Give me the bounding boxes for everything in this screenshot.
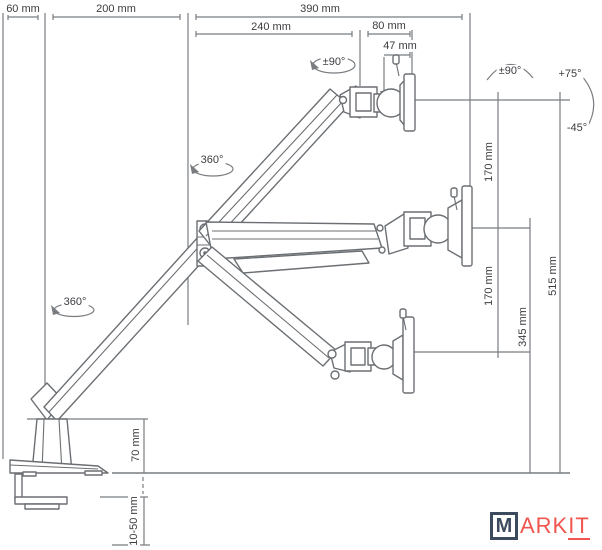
monitor-head-bottom xyxy=(328,309,414,393)
vesa-plate xyxy=(403,317,414,393)
angle-label-tilt-up: +75° xyxy=(556,68,583,80)
line-drawing xyxy=(0,0,602,550)
head-bracket-inner xyxy=(356,93,371,111)
monitor-arm-dimension-drawing: 60 mm 200 mm 390 mm 240 mm 80 mm 47 mm ±… xyxy=(0,0,602,550)
logo-it: IT xyxy=(568,513,590,540)
vesa-plate xyxy=(462,186,472,266)
dim-label-515mm: 515 mm xyxy=(547,254,559,298)
logo-ark: ARK xyxy=(520,513,568,538)
dim-label-47mm: 47 mm xyxy=(381,40,419,52)
head-pivot-screw-b xyxy=(331,371,339,379)
dim-label-345mm: 345 mm xyxy=(517,305,529,349)
angle-label-elbow-rotation: 360° xyxy=(199,154,226,166)
tilt-arc xyxy=(580,74,594,129)
head-cone xyxy=(393,335,403,380)
clamp-foot-left xyxy=(23,472,36,476)
monitor-head-top xyxy=(340,55,416,131)
monitor-head-middle xyxy=(385,186,472,266)
arm-artwork xyxy=(10,55,472,509)
dim-label-70mm: 70 mm xyxy=(130,426,142,464)
clamp-pad xyxy=(25,504,59,509)
quick-release-cap xyxy=(451,188,457,197)
dim-label-200mm: 200 mm xyxy=(94,3,138,15)
rotation-arrow-base xyxy=(51,305,60,315)
clamp-bottom-arm xyxy=(15,497,67,504)
rotation-annotations xyxy=(51,57,594,317)
dim-label-60mm: 60 mm xyxy=(4,3,42,15)
dim-label-170mm-upper: 170 mm xyxy=(483,140,495,184)
angle-label-swivel: ±90° xyxy=(497,65,524,77)
dim-label-80mm: 80 mm xyxy=(370,20,408,32)
middle-arm-pivot-a xyxy=(377,225,383,231)
angle-label-head-rotation: ±90° xyxy=(321,56,348,68)
dim-label-10-50mm: 10-50 mm xyxy=(128,494,140,548)
quick-release-cap xyxy=(400,309,406,318)
lower-arm-inner-line xyxy=(49,241,204,412)
head-bracket-inner xyxy=(351,348,365,365)
angle-label-base-rotation: 360° xyxy=(62,296,89,308)
middle-arm-pivot-b xyxy=(379,247,385,253)
angle-label-tilt-down: -45° xyxy=(565,122,589,134)
head-pivot-screw-a xyxy=(328,350,336,358)
lower-arm xyxy=(44,236,213,421)
quick-release-cap xyxy=(393,55,399,64)
dim-label-390mm: 390 mm xyxy=(298,3,342,15)
clamp-foot-right xyxy=(85,471,102,475)
dim-label-240mm: 240 mm xyxy=(249,21,293,33)
dim-label-170mm-lower: 170 mm xyxy=(483,264,495,308)
logo-m-box: M xyxy=(490,512,518,540)
head-cone xyxy=(448,200,462,258)
clamp-side xyxy=(15,474,22,500)
logo-wordmark: ARKIT xyxy=(520,513,590,539)
head-pivot-screw xyxy=(340,97,347,104)
vesa-plate xyxy=(404,74,415,131)
brand-logo: M ARKIT xyxy=(490,512,590,540)
head-bracket-inner xyxy=(410,218,425,239)
